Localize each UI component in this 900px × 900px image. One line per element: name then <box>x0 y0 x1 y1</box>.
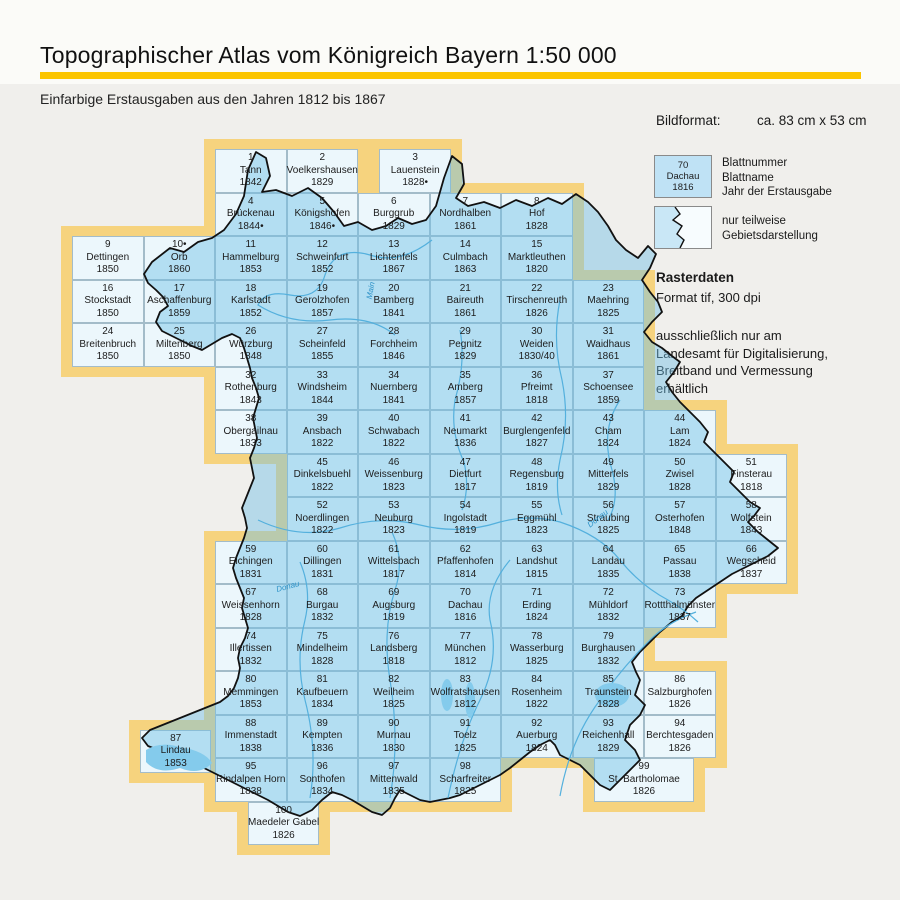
sheet-name: Wolfstein <box>731 513 772 526</box>
sheet-number: 61 <box>388 544 399 557</box>
sheet-name: Cham <box>595 426 622 439</box>
sheet-cell-53: 53Neuburg1823 <box>358 497 430 541</box>
sheet-number: 90 <box>388 718 399 731</box>
sheet-number: 91 <box>460 718 471 731</box>
sheet-year: 1816 <box>454 612 476 625</box>
sheet-cell-48: 48Regensburg1819 <box>501 454 573 498</box>
sheet-year: 1829 <box>311 177 333 190</box>
sheet-name: Pfaffenhofen <box>437 556 494 569</box>
sheet-number: 67 <box>245 587 256 600</box>
sheet-cell-81: 81Kaufbeuern1834 <box>287 671 359 715</box>
sheet-year: 1818 <box>383 656 405 669</box>
legend-partial-labels: nur teilweise Gebietsdarstellung <box>722 214 818 243</box>
sheet-name: München <box>445 643 486 656</box>
sheet-year: 1852 <box>311 264 333 277</box>
sheet-year: 1829 <box>597 482 619 495</box>
sheet-number: 37 <box>603 370 614 383</box>
sheet-number: 71 <box>531 587 542 600</box>
sheet-cell-68: 68Burgau1832 <box>287 584 359 628</box>
sheet-name: Noerdlingen <box>295 513 349 526</box>
sheet-year: 1853 <box>240 699 262 712</box>
sheet-number: 25 <box>174 326 185 339</box>
sheet-name: Lauenstein <box>391 165 440 178</box>
sheet-number: 38 <box>245 413 256 426</box>
sheet-cell-31: 31Waidhaus1861 <box>573 323 645 367</box>
sheet-number: 83 <box>460 674 471 687</box>
sheet-year: 1829 <box>383 221 405 234</box>
sheet-cell-61: 61Wittelsbach1817 <box>358 541 430 585</box>
sheet-number: 72 <box>603 587 614 600</box>
sheet-cell-28: 28Forchheim1846 <box>358 323 430 367</box>
sheet-number: 46 <box>388 457 399 470</box>
sheet-cell-9: 9Dettingen1850 <box>72 236 144 280</box>
sheet-year: 1818 <box>526 395 548 408</box>
sheet-name: Rothenburg <box>225 382 277 395</box>
sheet-cell-17: 17Aschaffenburg1859 <box>144 280 216 324</box>
sheet-name: Murnau <box>377 730 411 743</box>
sheet-year: 1843 <box>740 525 762 538</box>
sheet-name: Amberg <box>448 382 483 395</box>
raster-title: Rasterdaten <box>656 270 734 285</box>
sheet-name: Kempten <box>302 730 342 743</box>
sheet-year: 1829 <box>454 351 476 364</box>
sheet-cell-96: 96Sonthofen1834 <box>287 758 359 802</box>
sheet-name: Wasserburg <box>510 643 564 656</box>
sheet-number: 84 <box>531 674 542 687</box>
sheet-cell-97: 97Mittenwald1835 <box>358 758 430 802</box>
sheet-year: 1835 <box>383 786 405 799</box>
sheet-cell-54: 54Ingolstadt1819 <box>430 497 502 541</box>
sheet-cell-88: 88Immenstadt1838 <box>215 715 287 759</box>
sheet-number: 78 <box>531 631 542 644</box>
raster-format-line: Format tif, 300 dpi <box>656 289 761 307</box>
sheet-year: 1853 <box>240 264 262 277</box>
sheet-name: Burglengenfeld <box>503 426 570 439</box>
sheet-year: 1826 <box>273 830 295 843</box>
sheet-cell-8: 8Hof1828 <box>501 193 573 237</box>
sheet-year: 1817 <box>383 569 405 582</box>
sheet-name: Landsberg <box>370 643 417 656</box>
sheet-number: 14 <box>460 239 471 252</box>
sheet-year: 1831 <box>311 569 333 582</box>
sheet-name: Scharfreiter <box>439 774 491 787</box>
bildformat-value: ca. 83 cm x 53 cm <box>757 113 867 128</box>
sheet-name: Wittelsbach <box>368 556 420 569</box>
sheet-number: 68 <box>317 587 328 600</box>
sheet-cell-38: 38Obergailnau1833 <box>215 410 287 454</box>
sheet-number: 87 <box>170 733 181 746</box>
sheet-year: 1834 <box>311 786 333 799</box>
sheet-number: 20 <box>388 283 399 296</box>
sheet-cell-87: 87Lindau1853 <box>140 730 212 774</box>
sheet-name: Scheinfeld <box>299 339 346 352</box>
sheet-number: 73 <box>674 587 685 600</box>
title-rule <box>40 72 861 79</box>
sheet-cell-12: 12Schweinfurt1852 <box>287 236 359 280</box>
sheet-number: 43 <box>603 413 614 426</box>
sheet-name: Traunstein <box>585 687 632 700</box>
sheet-number: 58 <box>746 500 757 513</box>
sheet-number: 42 <box>531 413 542 426</box>
sheet-cell-14: 14Culmbach1863 <box>430 236 502 280</box>
sheet-number: 22 <box>531 283 542 296</box>
sheet-number: 99 <box>638 761 649 774</box>
sheet-cell-13: 13Lichtenfels1867 <box>358 236 430 280</box>
sheet-name: Mühldorf <box>589 600 628 613</box>
sheet-number: 1 <box>248 152 254 165</box>
sheet-name: Finsterau <box>730 469 772 482</box>
sheet-number: 74 <box>245 631 256 644</box>
sheet-cell-99: 99St. Bartholomae1826 <box>594 758 694 802</box>
sheet-number: 23 <box>603 283 614 296</box>
sheet-year: 1825 <box>383 699 405 712</box>
page-title: Topographischer Atlas vom Königreich Bay… <box>40 42 617 69</box>
sheet-number: 16 <box>102 283 113 296</box>
sheet-name: Zwisel <box>666 469 694 482</box>
sheet-number: 31 <box>603 326 614 339</box>
sheet-name: Maehring <box>587 295 629 308</box>
sheet-name: Sonthofen <box>299 774 345 787</box>
sheet-cell-43: 43Cham1824 <box>573 410 645 454</box>
sheet-year: 1825 <box>454 743 476 756</box>
sheet-cell-4: 4Brückenau1844• <box>215 193 287 237</box>
sheet-year: 1822 <box>311 525 333 538</box>
sheet-number: 79 <box>603 631 614 644</box>
sheet-name: Voelkershausen <box>287 165 358 178</box>
sheet-number: 89 <box>317 718 328 731</box>
sheet-number: 66 <box>746 544 757 557</box>
sheet-year: 1825 <box>597 525 619 538</box>
sheet-number: 9 <box>105 239 111 252</box>
sheet-name: Kaufbeuern <box>296 687 348 700</box>
sheet-number: 4 <box>248 196 254 209</box>
sheet-name: Marktleuthen <box>508 252 566 265</box>
sheet-name: Toelz <box>454 730 477 743</box>
sheet-year: 1855 <box>311 351 333 364</box>
sheet-name: Rindalpen Horn <box>216 774 286 787</box>
sheet-year: 1828 <box>311 656 333 669</box>
sheet-year: 1818 <box>740 482 762 495</box>
sheet-number: 19 <box>317 283 328 296</box>
sheet-number: 98 <box>460 761 471 774</box>
sheet-number: 97 <box>388 761 399 774</box>
sheet-name: Rottthalmünster <box>644 600 715 613</box>
sheet-number: 63 <box>531 544 542 557</box>
sheet-name: Salzburghofen <box>648 687 713 700</box>
sheet-cell-25: 25Miltenberg1850 <box>144 323 216 367</box>
sheet-cell-79: 79Burghausen1832 <box>573 628 645 672</box>
sheet-year: 1828 <box>669 482 691 495</box>
sheet-name: Ansbach <box>303 426 342 439</box>
sheet-number: 48 <box>531 457 542 470</box>
sheet-name: Bamberg <box>373 295 414 308</box>
sheet-number: 64 <box>603 544 614 557</box>
sheet-year: 1834 <box>311 699 333 712</box>
sheet-year: 1832 <box>240 656 262 669</box>
sheet-number: 5 <box>319 196 325 209</box>
sheet-cell-35: 35Amberg1857 <box>430 367 502 411</box>
sheet-year: 1823 <box>383 482 405 495</box>
sheet-year: 1815 <box>526 569 548 582</box>
sheet-year: 1824 <box>526 743 548 756</box>
sheet-number: 10• <box>172 239 187 252</box>
legend-sample-name: Dachau <box>667 171 700 182</box>
legend-partial-swatch <box>654 206 712 249</box>
legend-sample-labels: Blattnummer Blattname Jahr der Erstausga… <box>722 156 832 200</box>
sheet-name: St. Bartholomae <box>608 774 680 787</box>
sheet-cell-76: 76Landsberg1818 <box>358 628 430 672</box>
sheet-year: 1825 <box>597 308 619 321</box>
sheet-number: 93 <box>603 718 614 731</box>
sheet-number: 80 <box>245 674 256 687</box>
sheet-number: 65 <box>674 544 685 557</box>
sheet-year: 1817 <box>454 482 476 495</box>
sheet-name: Landshut <box>516 556 557 569</box>
sheet-number: 2 <box>319 152 325 165</box>
sheet-name: Würzburg <box>229 339 272 352</box>
sheet-year: 1814 <box>454 569 476 582</box>
sheet-cell-26: 26Würzburg1848 <box>215 323 287 367</box>
sheet-name: Hof <box>529 208 545 221</box>
sheet-cell-15: 15Marktleuthen1820 <box>501 236 573 280</box>
sheet-number: 85 <box>603 674 614 687</box>
sheet-cell-24: 24Breitenbruch1850 <box>72 323 144 367</box>
sheet-cell-63: 63Landshut1815 <box>501 541 573 585</box>
sheet-cell-49: 49Mitterfels1829 <box>573 454 645 498</box>
sheet-year: 1844• <box>238 221 264 234</box>
sheet-name: Dinkelsbuehl <box>294 469 351 482</box>
sheet-year: 1859 <box>168 308 190 321</box>
sheet-cell-6: 6Burggrub1829 <box>358 193 430 237</box>
sheet-year: 1831 <box>240 569 262 582</box>
sheet-cell-98: 98Scharfreiter1825 <box>430 758 502 802</box>
sheet-number: 6 <box>391 196 397 209</box>
sheet-number: 3 <box>412 152 418 165</box>
sheet-year: 1848 <box>240 351 262 364</box>
sheet-cell-33: 33Windsheim1844 <box>287 367 359 411</box>
sheet-cell-82: 82Weilheim1825 <box>358 671 430 715</box>
sheet-name: Lindau <box>161 745 191 758</box>
sheet-year: 1828 <box>526 221 548 234</box>
sheet-number: 39 <box>317 413 328 426</box>
sheet-name: Weilheim <box>373 687 414 700</box>
sheet-number: 77 <box>460 631 471 644</box>
sheet-name: Mitterfels <box>588 469 629 482</box>
sheet-cell-52: 52Noerdlingen1822 <box>287 497 359 541</box>
sheet-cell-11: 11Hammelburg1853 <box>215 236 287 280</box>
sheet-cell-50: 50Zwisel1828 <box>644 454 716 498</box>
sheet-name: Mittenwald <box>370 774 418 787</box>
sheet-cell-62: 62Pfaffenhofen1814 <box>430 541 502 585</box>
sheet-number: 53 <box>388 500 399 513</box>
sheet-year: 1843 <box>240 395 262 408</box>
sheet-year: 1822 <box>311 482 333 495</box>
sheet-year: 1830/40 <box>519 351 555 364</box>
sheet-year: 1863 <box>454 264 476 277</box>
sheet-name: Baireuth <box>447 295 484 308</box>
sheet-cell-73: 73Rottthalmünster1837 <box>644 584 716 628</box>
sheet-year: 1842 <box>240 177 262 190</box>
sheet-number: 17 <box>174 283 185 296</box>
sheet-year: 1848 <box>669 525 691 538</box>
sheet-cell-56: 56Straubing1825 <box>573 497 645 541</box>
sheet-name: Brückenau <box>227 208 275 221</box>
sheet-year: 1830 <box>383 743 405 756</box>
sheet-year: 1860 <box>168 264 190 277</box>
sheet-name: Dietfurt <box>449 469 481 482</box>
sheet-year: 1825 <box>526 656 548 669</box>
sheet-name: Berchtesgaden <box>646 730 713 743</box>
sheet-number: 70 <box>460 587 471 600</box>
sheet-cell-2: 2Voelkershausen1829 <box>287 149 359 193</box>
sheet-cell-77: 77München1812 <box>430 628 502 672</box>
sheet-cell-93: 93Reichenhall1829 <box>573 715 645 759</box>
sheet-cell-71: 71Erding1824 <box>501 584 573 628</box>
sheet-number: 15 <box>531 239 542 252</box>
sheet-name: Windsheim <box>298 382 347 395</box>
sheet-name: Burgau <box>306 600 338 613</box>
sheet-year: 1867 <box>383 264 405 277</box>
sheet-year: 1832 <box>597 656 619 669</box>
sheet-name: Auerburg <box>516 730 557 743</box>
sheet-cell-7: 7Nordhalben1861 <box>430 193 502 237</box>
sheet-cell-45: 45Dinkelsbuehl1822 <box>287 454 359 498</box>
sheet-number: 12 <box>317 239 328 252</box>
sheet-year: 1850 <box>168 351 190 364</box>
sheet-year: 1832 <box>311 612 333 625</box>
sheet-number: 36 <box>531 370 542 383</box>
sheet-cell-58: 58Wolfstein1843 <box>716 497 788 541</box>
legend-sample-year: 1816 <box>672 182 693 193</box>
sheet-number: 54 <box>460 500 471 513</box>
sheet-name: Königshofen <box>294 208 350 221</box>
sheet-number: 94 <box>674 718 685 731</box>
page-subtitle: Einfarbige Erstausgaben aus den Jahren 1… <box>40 91 386 107</box>
sheet-year: 1841 <box>383 395 405 408</box>
sheet-name: Orb <box>171 252 188 265</box>
sheet-name: Eggmühl <box>517 513 556 526</box>
sheet-number: 92 <box>531 718 542 731</box>
sheet-cell-37: 37Schoensee1859 <box>573 367 645 411</box>
sheet-name: Reichenhall <box>582 730 634 743</box>
sheet-number: 27 <box>317 326 328 339</box>
sheet-number: 44 <box>674 413 685 426</box>
sheet-name: Tirschenreuth <box>506 295 567 308</box>
sheet-name: Augsburg <box>372 600 415 613</box>
sheet-name: Gerolzhofen <box>295 295 349 308</box>
sheet-cell-16: 16Stockstadt1850 <box>72 280 144 324</box>
sheet-year: 1824 <box>526 612 548 625</box>
sheet-cell-1: 1Tann1842 <box>215 149 287 193</box>
sheet-number: 76 <box>388 631 399 644</box>
sheet-year: 1861 <box>597 351 619 364</box>
sheet-name: Ingolstadt <box>444 513 487 526</box>
sheet-number: 57 <box>674 500 685 513</box>
sheet-cell-18: 18Karlstadt1852 <box>215 280 287 324</box>
sheet-name: Neuburg <box>375 513 413 526</box>
sheet-number: 59 <box>245 544 256 557</box>
sheet-cell-42: 42Burglengenfeld1827 <box>501 410 573 454</box>
sheet-year: 1824 <box>669 438 691 451</box>
sheet-year: 1838 <box>240 786 262 799</box>
sheet-cell-66: 66Wegscheid1837 <box>716 541 788 585</box>
legend-sample-cell: 70 Dachau 1816 <box>654 155 712 198</box>
sheet-year: 1852 <box>240 308 262 321</box>
sheet-year: 1823 <box>526 525 548 538</box>
sheet-number: 49 <box>603 457 614 470</box>
sheet-year: 1850 <box>97 264 119 277</box>
sheet-year: 1857 <box>454 395 476 408</box>
sheet-cell-94: 94Berchtesgaden1826 <box>644 715 716 759</box>
sheet-year: 1812 <box>454 656 476 669</box>
sheet-number: 75 <box>317 631 328 644</box>
sheet-cell-74: 74Illertissen1832 <box>215 628 287 672</box>
sheet-cell-21: 21Baireuth1861 <box>430 280 502 324</box>
sheet-year: 1828 <box>240 612 262 625</box>
sheet-cell-91: 91Toelz1825 <box>430 715 502 759</box>
sheet-name: Mindelheim <box>297 643 348 656</box>
sheet-name: Weissenburg <box>365 469 423 482</box>
sheet-year: 1819 <box>383 612 405 625</box>
sheet-year: 1822 <box>383 438 405 451</box>
sheet-number: 32 <box>245 370 256 383</box>
sheet-cell-29: 29Pegnitz1829 <box>430 323 502 367</box>
sheet-name: Elchingen <box>229 556 273 569</box>
sheet-number: 69 <box>388 587 399 600</box>
sheet-year: 1819 <box>454 525 476 538</box>
sheet-name: Lam <box>670 426 689 439</box>
sheet-cell-10: 10•Orb1860 <box>144 236 216 280</box>
sheet-year: 1826 <box>526 308 548 321</box>
sheet-cell-40: 40Schwabach1822 <box>358 410 430 454</box>
sheet-cell-30: 30Weiden1830/40 <box>501 323 573 367</box>
sheet-name: Schweinfurt <box>296 252 348 265</box>
sheet-year: 1841 <box>383 308 405 321</box>
sheet-cell-70: 70Dachau1816 <box>430 584 502 628</box>
sheet-cell-19: 19Gerolzhofen1857 <box>287 280 359 324</box>
sheet-cell-44: 44Lam1824 <box>644 410 716 454</box>
sheet-year: 1846• <box>309 221 335 234</box>
sheet-cell-34: 34Nuernberg1841 <box>358 367 430 411</box>
sheet-cell-92: 92Auerburg1824 <box>501 715 573 759</box>
sheet-name: Lichtenfels <box>370 252 418 265</box>
sheet-cell-39: 39Ansbach1822 <box>287 410 359 454</box>
sheet-number: 33 <box>317 370 328 383</box>
sheet-name: Culmbach <box>443 252 488 265</box>
sheet-number: 8 <box>534 196 540 209</box>
sheet-number: 24 <box>102 326 113 339</box>
sheet-name: Neumarkt <box>444 426 487 439</box>
sheet-cell-59: 59Elchingen1831 <box>215 541 287 585</box>
sheet-cell-3: 3Lauenstein1828• <box>379 149 451 193</box>
sheet-name: Passau <box>663 556 696 569</box>
sheet-number: 45 <box>317 457 328 470</box>
sheet-name: Aschaffenburg <box>147 295 211 308</box>
sheet-name: Hammelburg <box>222 252 279 265</box>
sheet-cell-46: 46Weissenburg1823 <box>358 454 430 498</box>
sheet-name: Karlstadt <box>231 295 270 308</box>
sheet-year: 1833 <box>240 438 262 451</box>
sheet-year: 1829 <box>597 743 619 756</box>
sheet-cell-36: 36Pfreimt1818 <box>501 367 573 411</box>
sheet-cell-64: 64Landau1835 <box>573 541 645 585</box>
sheet-name: Immenstadt <box>225 730 277 743</box>
sheet-number: 40 <box>388 413 399 426</box>
sheet-year: 1824 <box>597 438 619 451</box>
sheet-year: 1825 <box>454 786 476 799</box>
sheet-name: Burggrub <box>373 208 414 221</box>
sheet-year: 1835 <box>597 569 619 582</box>
